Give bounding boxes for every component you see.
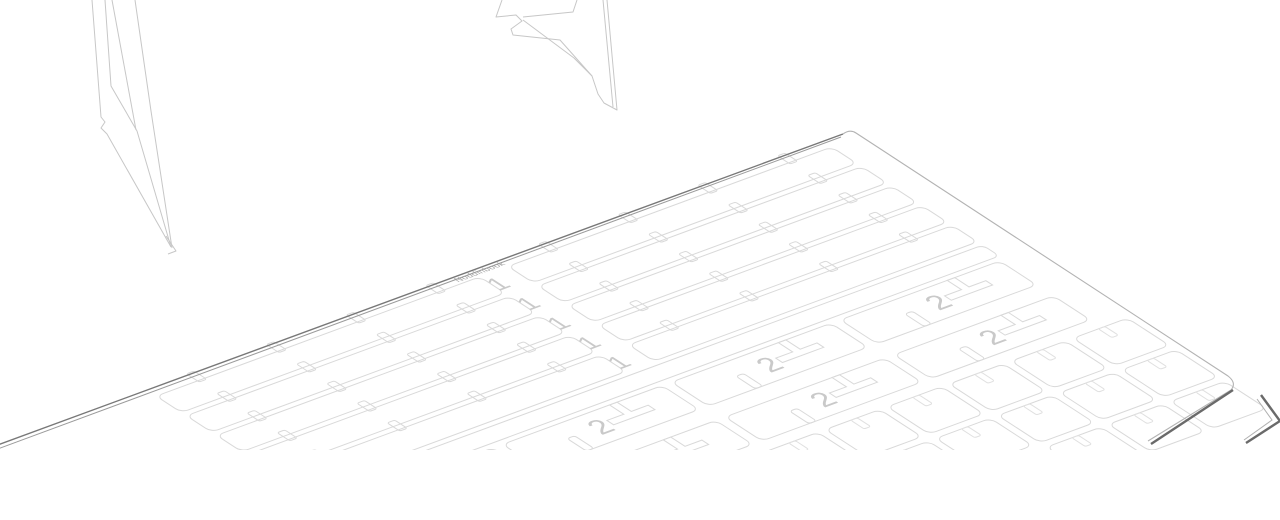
strip-part [588, 199, 948, 342]
plate-part [334, 448, 530, 520]
key-part [1108, 404, 1204, 451]
sheet-engravings: Noddinbook 1 1 1 1 1 2 2 2 2 2 2 2 2 [224, 169, 1015, 520]
part-number: 2 [411, 478, 454, 502]
key-part [825, 410, 921, 457]
part-number: 2 [580, 415, 623, 439]
strip-part [236, 329, 596, 472]
key-part [1073, 318, 1169, 365]
strip-part [557, 179, 917, 322]
strip-part [618, 218, 978, 361]
part-number: 2 [971, 326, 1014, 350]
part-number: 2 [633, 450, 676, 474]
part-number: 1 [479, 273, 518, 294]
part-number: 2 [802, 388, 845, 412]
part-number: 2 [917, 291, 960, 315]
sheet-edge-thickness [0, 137, 841, 450]
plate-part [556, 420, 752, 503]
strip-part [497, 140, 857, 283]
key-part [998, 395, 1094, 442]
part-number: 1 [599, 352, 638, 373]
part-number: 1 [509, 293, 548, 314]
part-number: 2 [748, 353, 791, 377]
plate-part [387, 483, 583, 520]
key-part [936, 418, 1032, 465]
part-number: 2 [464, 513, 507, 520]
trestle-leg-left [92, 0, 176, 254]
sheet-parts [145, 132, 1266, 520]
key-part [874, 441, 970, 488]
sheet-edge-top-right [843, 131, 1233, 441]
key-part [887, 387, 983, 434]
part-number: 1 [539, 312, 578, 333]
strip-part [145, 270, 505, 413]
key-part [763, 432, 859, 479]
second-sheet-corner [1244, 395, 1280, 443]
sheet-edge-top-left [0, 134, 843, 446]
key-part [949, 364, 1045, 411]
key-part [1060, 373, 1156, 420]
part-number: 1 [569, 332, 608, 353]
strip-part [176, 289, 536, 432]
strip-part [266, 348, 626, 491]
key-part [1122, 350, 1218, 397]
key-part [1047, 427, 1143, 474]
strip-part [206, 309, 566, 452]
render-viewport: Noddinbook 1 1 1 1 1 2 2 2 2 2 2 2 2 [0, 0, 1280, 520]
key-part [1011, 341, 1107, 388]
strip-part [307, 245, 999, 505]
wireframe-scene: Noddinbook 1 1 1 1 1 2 2 2 2 2 2 2 2 [0, 0, 1280, 520]
trestle-leg-center [496, 0, 617, 110]
